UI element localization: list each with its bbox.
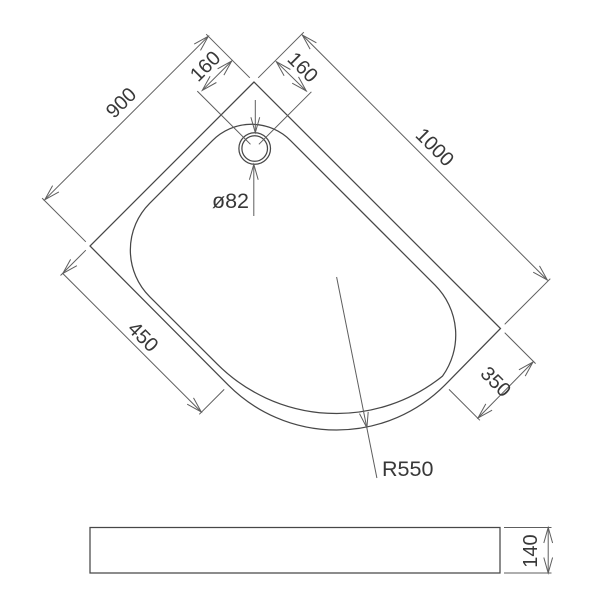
svg-text:1000: 1000 [411,124,458,171]
svg-text:R550: R550 [382,457,433,481]
svg-text:900: 900 [102,84,141,123]
svg-text:450: 450 [123,318,162,357]
svg-text:350: 350 [476,363,515,402]
svg-text:ø82: ø82 [212,189,249,213]
svg-text:140: 140 [520,534,542,567]
svg-text:160: 160 [283,48,322,87]
